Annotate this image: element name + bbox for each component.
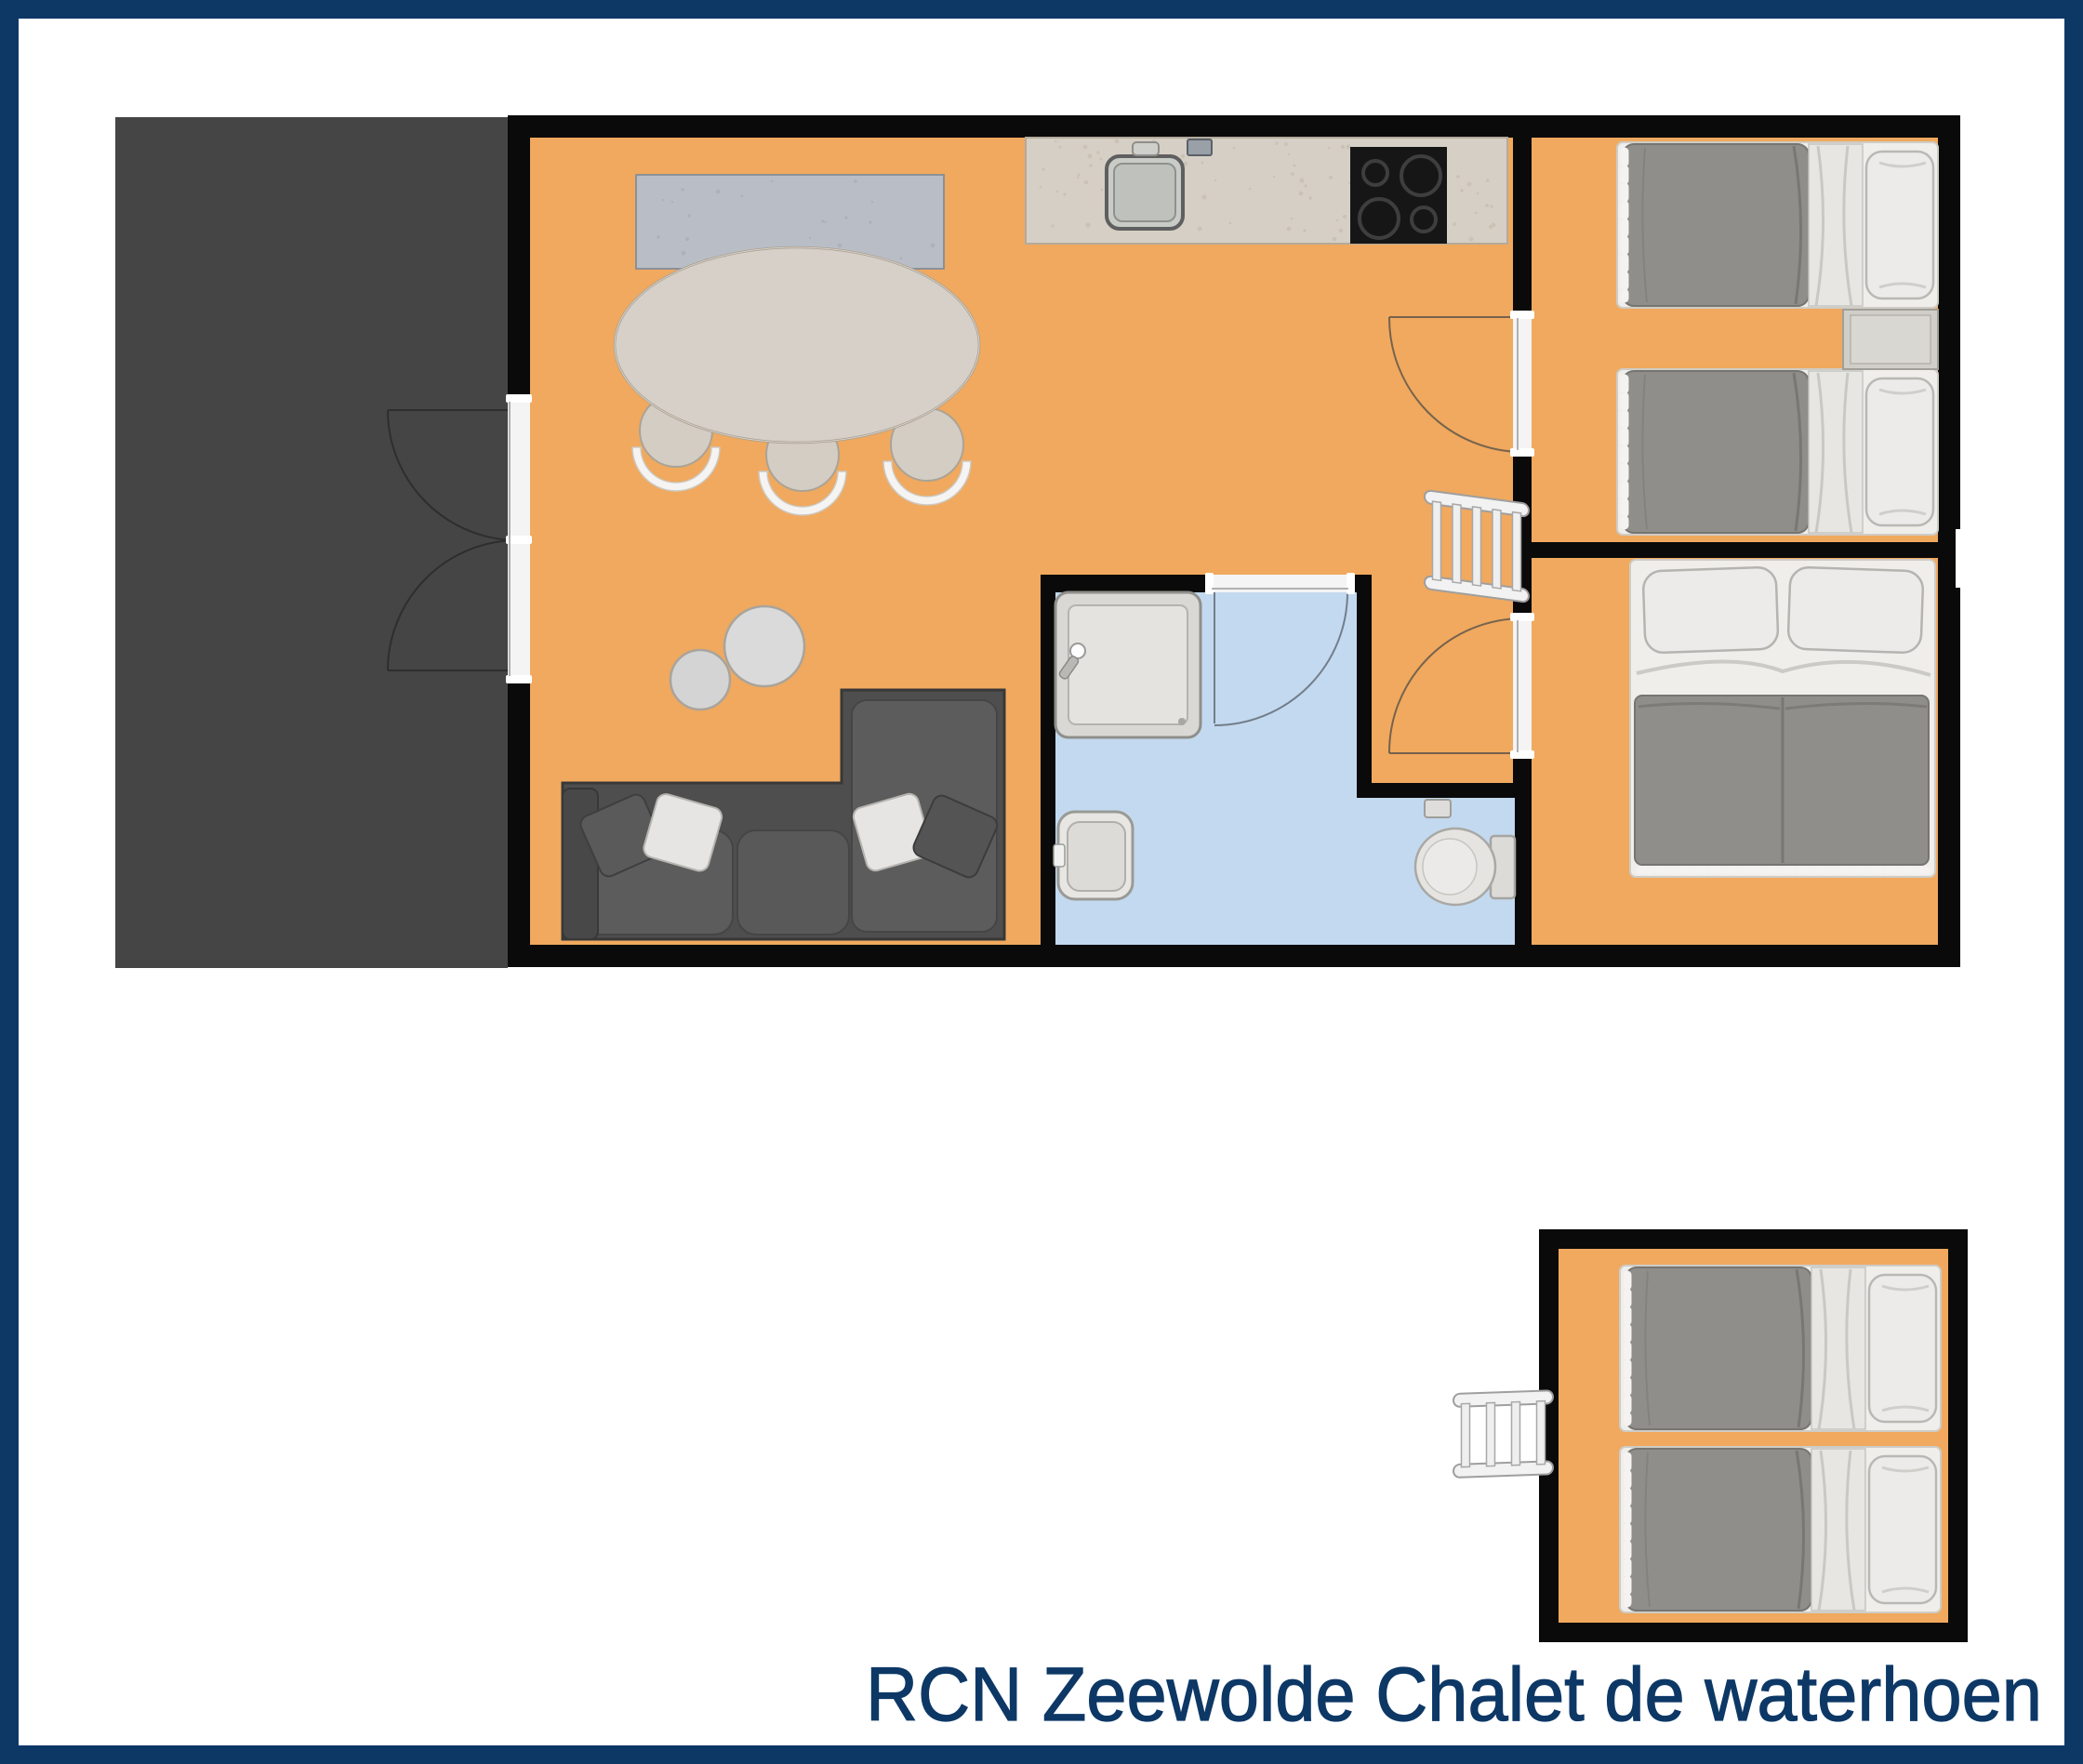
svg-text:RCN Zeewolde Chalet de waterho: RCN Zeewolde Chalet de waterhoen: [866, 1652, 2042, 1737]
